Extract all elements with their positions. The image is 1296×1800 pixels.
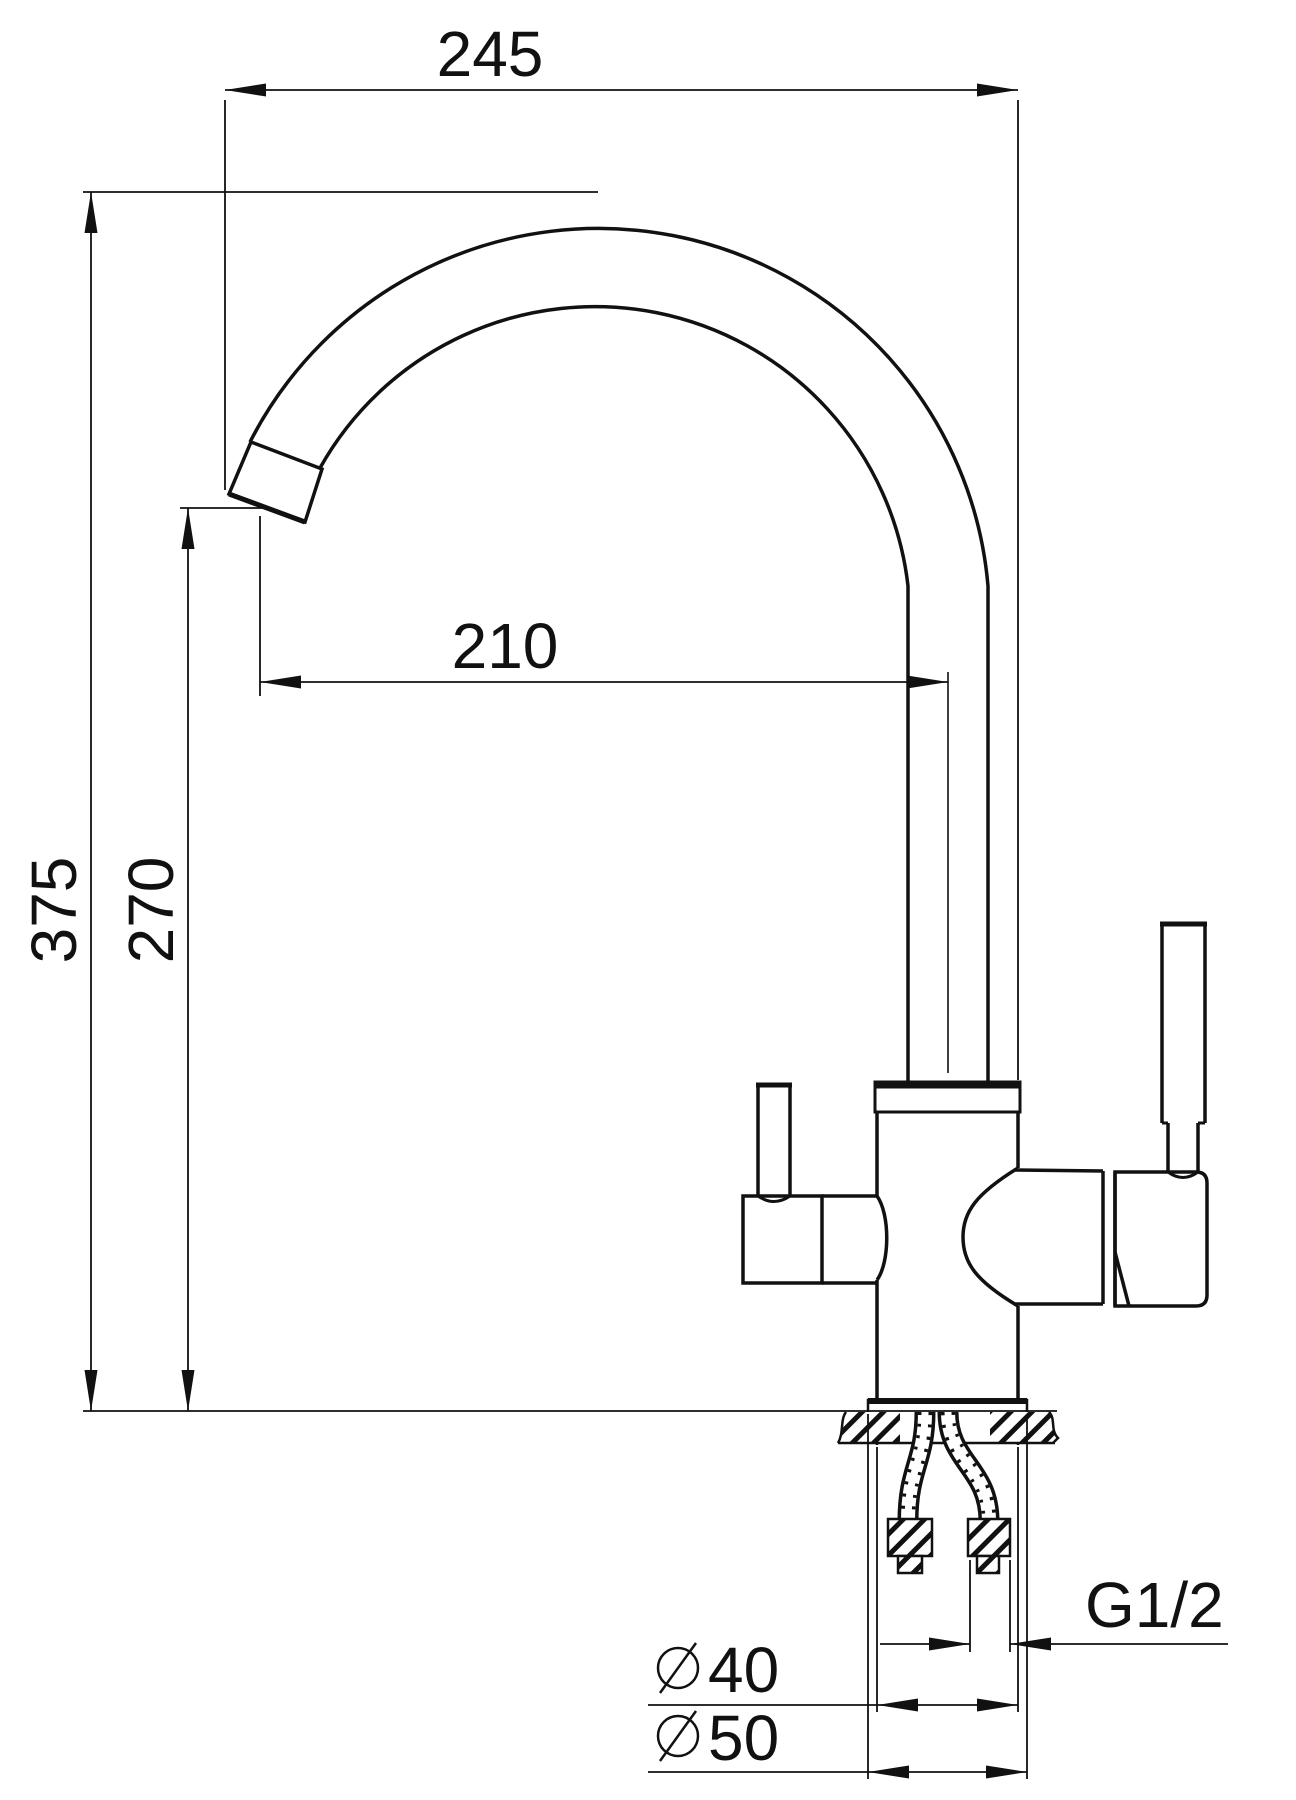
arrow-210-left: [260, 676, 301, 689]
dim-d40-ext: [877, 1447, 1018, 1712]
arrow-d50-left: [868, 1766, 909, 1779]
faucet-dimension-drawing: 245 210 375 270 G1/2 40 50: [0, 0, 1296, 1800]
body-left-waist: [877, 1196, 887, 1280]
hose-right-fitting: [968, 1519, 1010, 1556]
dim-d50-label: 50: [708, 1702, 779, 1774]
left-valve-adapter: [822, 1196, 877, 1283]
arrow-270-top: [182, 508, 195, 549]
hose-right-fitting-stub: [977, 1556, 999, 1573]
arrow-g12-left: [929, 1638, 970, 1651]
right-lever-neck: [1168, 1123, 1198, 1172]
dim-d50-ext: [868, 1414, 1027, 1779]
right-valve-joint: [1103, 1171, 1115, 1306]
hose-left-fitting-stub: [898, 1556, 922, 1573]
body-right-waist: [963, 1168, 1018, 1306]
countertop-hatch-left: [838, 1412, 900, 1443]
right-lever-rod: [1162, 926, 1205, 1123]
arrow-d40-right: [977, 1699, 1018, 1712]
right-valve-adapter: [1014, 1170, 1103, 1304]
spout-tube: [250, 228, 988, 1082]
left-valve-body: [743, 1196, 822, 1283]
dim-g12-label: G1/2: [1085, 1569, 1224, 1641]
technical-drawing-page: 245 210 375 270 G1/2 40 50: [0, 0, 1296, 1800]
dimension-lines: [83, 90, 1228, 1779]
dim-210-label: 210: [452, 610, 559, 682]
arrow-245-right: [977, 84, 1018, 97]
right-valve-body-slant: [1115, 1252, 1129, 1306]
dim-270-label: 270: [115, 857, 187, 964]
arrow-245-left: [225, 84, 266, 97]
hose-left-fitting: [888, 1519, 932, 1556]
countertop-hatch-right: [990, 1412, 1058, 1443]
left-lever-rod: [758, 1087, 790, 1196]
diameter-symbol: [658, 1711, 698, 1761]
arrow-g12-right: [1010, 1638, 1051, 1651]
arrow-375-bottom: [85, 1370, 98, 1411]
faucet-outline: [229, 228, 1207, 1445]
dim-245-label: 245: [437, 18, 544, 90]
dim-d40-label: 40: [708, 1634, 779, 1706]
arrow-375-top: [85, 192, 98, 233]
right-valve-body: [1115, 1172, 1207, 1306]
dim-375-label: 375: [18, 857, 90, 964]
diameter-symbol: [658, 1643, 698, 1693]
arrow-d50-right: [986, 1766, 1027, 1779]
arrow-d40-left: [877, 1699, 918, 1712]
dimension-labels: 245 210 375 270 G1/2 40 50: [18, 18, 1224, 1774]
arrow-270-bottom: [182, 1370, 195, 1411]
arrow-210-right: [907, 676, 948, 689]
